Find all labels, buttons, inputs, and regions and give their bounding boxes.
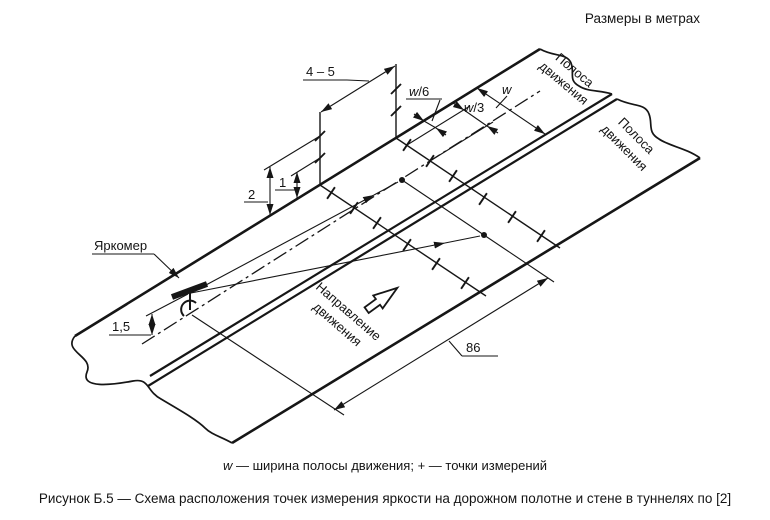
- direction-arrow-icon: [362, 281, 402, 316]
- measurement-point-tick: [327, 187, 335, 199]
- dim-label-2: 2: [248, 187, 255, 202]
- figure-b5-tunnel-luminance-scheme: 4 – 5 2 1 w/6 w/3 w 86: [0, 0, 770, 520]
- figure-caption: Рисунок Б.5 — Схема расположения точек и…: [39, 491, 731, 506]
- direction-label: Направление движения: [302, 279, 384, 356]
- dim-label-4-5: 4 – 5: [306, 64, 335, 79]
- meter-callout: Яркомер: [92, 238, 179, 278]
- measurement-row-near: [320, 185, 486, 296]
- leader-line: [154, 254, 179, 278]
- units-note: Размеры в метрах: [585, 11, 700, 26]
- dim-label-1: 1: [279, 175, 286, 190]
- dim-label-w: w: [502, 82, 513, 97]
- meter-label: Яркомер: [94, 238, 147, 253]
- sight-line-lane2-tail: [445, 236, 480, 243]
- lane1-label: Полоса движения: [536, 45, 602, 108]
- dim-label-w3: w/3: [464, 100, 484, 115]
- extension-line-w3-b: [430, 122, 493, 161]
- break-lines: [72, 49, 700, 443]
- legend-line: w — ширина полосы движения; + — точки из…: [223, 458, 547, 473]
- dim-label-w6: w/6: [409, 84, 429, 99]
- wall-measurement-verticals: [315, 64, 401, 185]
- leader-line: [347, 80, 369, 81]
- measurement-point-tick: [373, 217, 381, 229]
- dim-stub-w3-right: [487, 126, 498, 133]
- lane-divider-lower-line: [148, 99, 617, 386]
- sight-line-lane1: [191, 195, 374, 293]
- extension-line-2m: [264, 136, 320, 170]
- extension-line-near-station: [192, 315, 344, 415]
- dim-line-w6: [424, 121, 436, 128]
- dimension-wall-spacing: 4 – 5: [303, 64, 395, 112]
- measurement-point-tick: [537, 230, 545, 242]
- dim-line-86: [334, 278, 548, 410]
- aiming-point-lane2: [481, 232, 487, 238]
- dimension-wall-heights: 2 1: [244, 136, 320, 215]
- dimension-lane-width-chain: w/6 w/3 w: [406, 82, 545, 161]
- dimension-meter-height: 1,5: [109, 294, 188, 335]
- dimension-field-length: 86: [192, 278, 548, 415]
- travel-direction: Направление движения: [302, 279, 402, 356]
- lane2-label: Полоса движения: [598, 109, 662, 173]
- leader-line: [449, 341, 462, 356]
- dim-stub-w6-left: [414, 114, 424, 121]
- sight-line-lane1-tail: [374, 182, 398, 195]
- road-edges: [75, 49, 700, 443]
- extension-line-1m: [291, 158, 320, 176]
- near-break-wavy-line: [72, 336, 232, 443]
- dim-stub-w6-right: [436, 128, 446, 135]
- road-right-edge-line: [232, 158, 700, 443]
- aiming-row-extension-line: [402, 180, 554, 282]
- diagram-canvas: 4 – 5 2 1 w/6 w/3 w 86: [0, 0, 770, 520]
- aiming-point-lane1: [399, 177, 405, 183]
- dim-label-1-5: 1,5: [112, 319, 130, 334]
- measurement-point-tick: [449, 170, 457, 182]
- dim-stub-w3-left: [453, 103, 464, 110]
- road-left-edge-wall-base-line: [75, 49, 540, 336]
- dim-label-86: 86: [466, 340, 480, 355]
